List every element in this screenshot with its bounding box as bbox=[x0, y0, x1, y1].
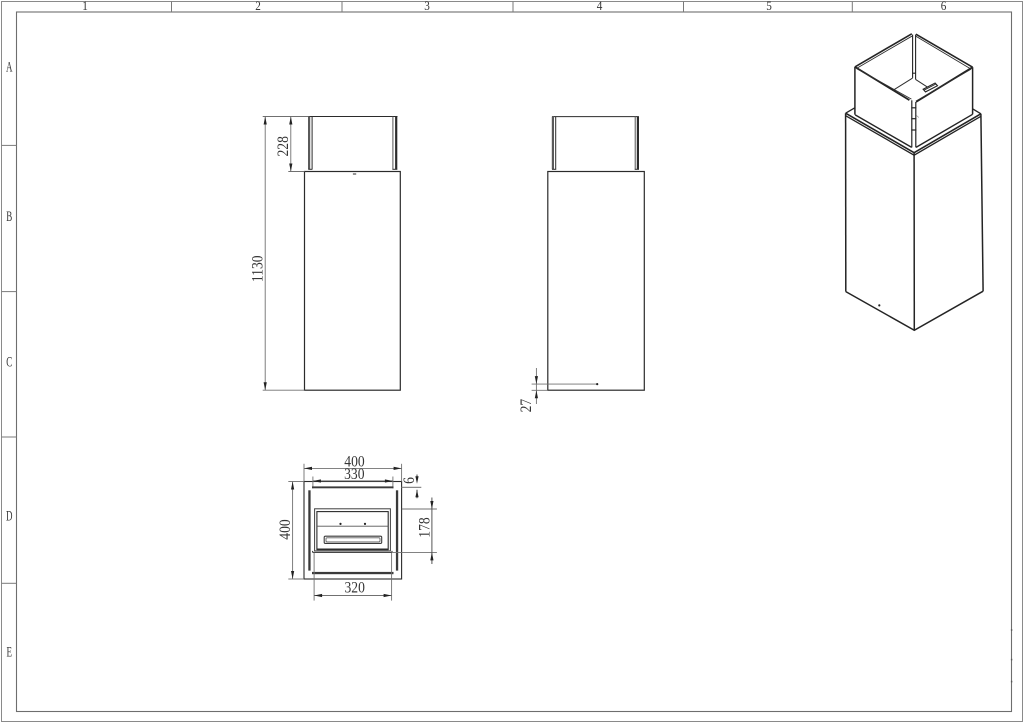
svg-text:3: 3 bbox=[424, 0, 430, 13]
svg-text:6: 6 bbox=[941, 0, 947, 13]
svg-text:2: 2 bbox=[255, 0, 261, 13]
svg-text:A: A bbox=[6, 58, 13, 75]
svg-text:178: 178 bbox=[416, 517, 433, 537]
svg-text:D: D bbox=[6, 507, 13, 524]
svg-text:E: E bbox=[6, 643, 11, 660]
svg-text:B: B bbox=[6, 208, 12, 225]
svg-text:27: 27 bbox=[518, 399, 535, 413]
svg-text:228: 228 bbox=[275, 136, 292, 156]
svg-text:1130: 1130 bbox=[250, 255, 267, 282]
svg-text:400: 400 bbox=[277, 519, 294, 539]
svg-text:1: 1 bbox=[82, 0, 88, 13]
svg-text:C: C bbox=[6, 353, 12, 370]
svg-text:4: 4 bbox=[597, 0, 603, 13]
svg-text:5: 5 bbox=[766, 0, 772, 13]
svg-text:320: 320 bbox=[345, 580, 365, 597]
svg-text:330: 330 bbox=[344, 466, 364, 483]
svg-text:6: 6 bbox=[401, 477, 418, 484]
